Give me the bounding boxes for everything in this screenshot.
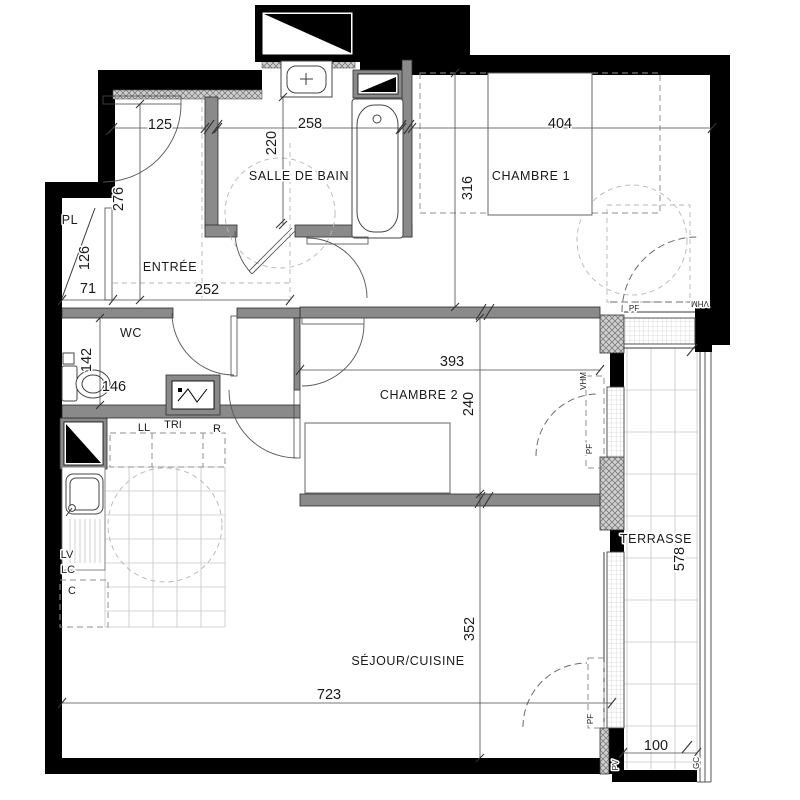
pf-chambre1-swing — [622, 237, 697, 312]
opening-label-vhm-chambre2: VHM — [579, 372, 588, 390]
opening-label-pf-sejour: PF — [586, 714, 595, 724]
dim-240: 240 — [461, 392, 477, 416]
appliance-label-c: C — [68, 585, 76, 597]
appliance-label-lc: LC — [61, 564, 75, 576]
bed-chambre2 — [305, 423, 450, 493]
dim-71: 71 — [80, 281, 96, 297]
appliance-label-lv: LV — [61, 549, 74, 561]
appliance-label-r: R — [213, 423, 221, 435]
dim-125: 125 — [148, 117, 172, 133]
opening-label-pf-chambre2: PF — [585, 444, 594, 454]
room-label-salle-de-bain: SALLE DE BAIN — [249, 169, 349, 183]
dim-723: 723 — [317, 687, 341, 703]
wardrobe-chambre1-right — [592, 73, 660, 213]
dim-252: 252 — [195, 282, 219, 298]
floor-plan-page: SALLE DE BAIN ENTRÉE CHAMBRE 1 CHAMBRE 2… — [0, 0, 800, 800]
pf-chambre1-leaf — [607, 205, 690, 302]
wc-door — [172, 313, 237, 376]
bathtub — [352, 99, 403, 238]
opening-label-pf-chambre1: PF — [629, 304, 639, 313]
chambre2-door — [302, 318, 364, 386]
floor-plan-svg: SALLE DE BAIN ENTRÉE CHAMBRE 1 CHAMBRE 2… — [0, 0, 800, 800]
dim-100: 100 — [644, 738, 668, 754]
window-sejour-terrace — [604, 552, 624, 728]
corridor-door — [307, 237, 368, 298]
dim-276: 276 — [111, 187, 127, 211]
room-label-chambre1: CHAMBRE 1 — [492, 169, 570, 183]
dim-352: 352 — [462, 617, 478, 641]
appliance-row — [110, 433, 225, 467]
sejour-door — [229, 390, 300, 458]
electrical-panel — [166, 375, 220, 415]
room-label-wc: WC — [120, 326, 142, 340]
terrace-railing — [697, 352, 711, 782]
opening-label-vhm-chambre1: VHM — [691, 299, 709, 308]
dim-126: 126 — [77, 246, 93, 270]
bed-chambre1 — [488, 73, 592, 215]
room-label-placard: PL — [62, 213, 79, 227]
dim-258: 258 — [298, 116, 322, 132]
kitchen-floor-tiles — [105, 467, 225, 627]
room-label-entree: ENTRÉE — [143, 259, 197, 274]
opening-label-gc: GC — [692, 757, 701, 769]
technical-shaft-kitchen — [60, 418, 107, 469]
appliance-label-tri: TRI — [164, 419, 182, 431]
dim-146: 146 — [102, 379, 126, 395]
window-chambre1-terrace — [624, 312, 695, 348]
window-chambre2-terrace — [607, 387, 624, 457]
technical-shaft-bath — [353, 70, 403, 98]
room-label-sejour: SÉJOUR/CUISINE — [351, 653, 464, 668]
dim-220: 220 — [264, 131, 280, 155]
bathroom-sink — [281, 61, 332, 97]
pf-sejour-swing — [523, 663, 587, 727]
dim-404: 404 — [548, 116, 572, 132]
dim-393: 393 — [440, 354, 464, 370]
technical-shaft-top — [255, 5, 360, 62]
room-label-terrasse: TERRASSE — [620, 532, 692, 546]
dim-316: 316 — [460, 176, 476, 200]
appliance-label-ll: LL — [138, 422, 150, 434]
opening-label-pv: PV — [611, 759, 620, 770]
dim-142: 142 — [79, 348, 95, 372]
wardrobe-chambre1-left — [420, 73, 488, 213]
room-label-chambre2: CHAMBRE 2 — [380, 388, 458, 402]
dim-578: 578 — [672, 547, 688, 571]
